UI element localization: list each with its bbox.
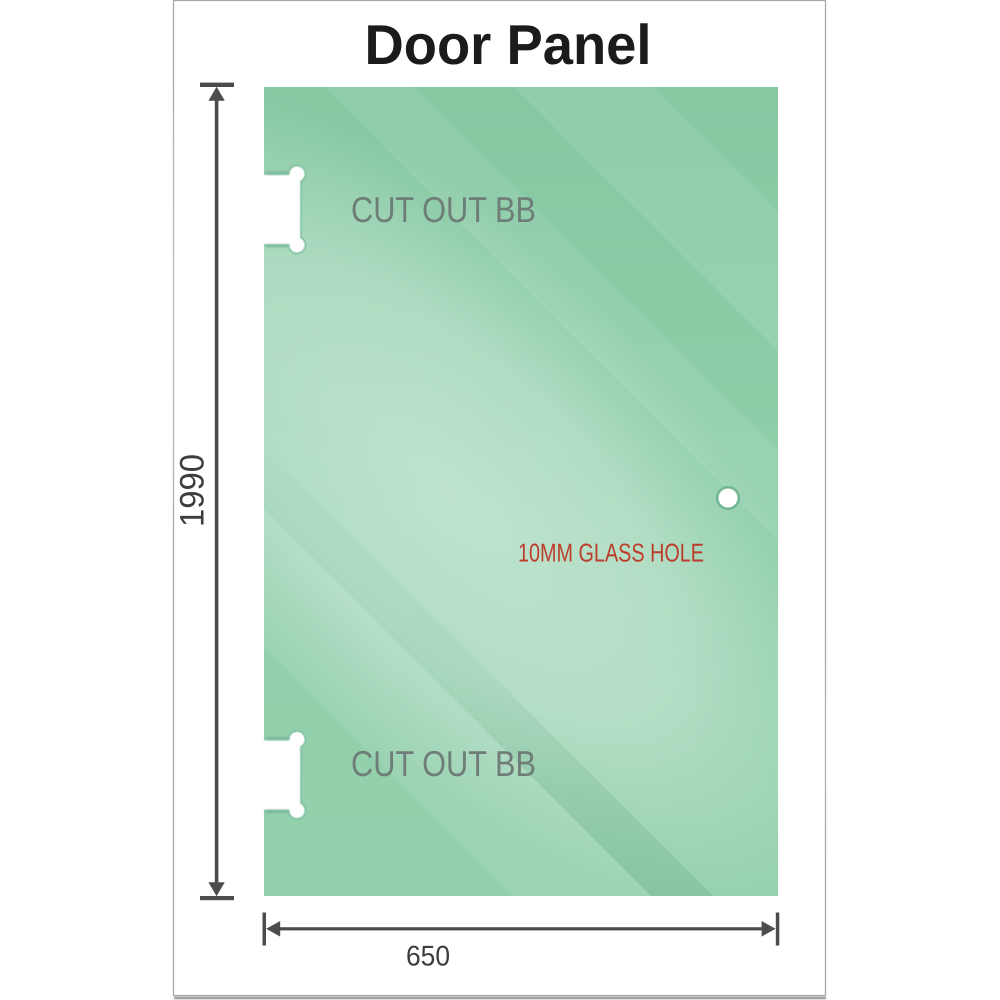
svg-text:CUT OUT BB: CUT OUT BB — [351, 189, 536, 230]
svg-text:Door Panel: Door Panel — [365, 13, 652, 76]
svg-text:1990: 1990 — [174, 454, 212, 527]
svg-text:10MM GLASS HOLE: 10MM GLASS HOLE — [518, 540, 704, 568]
svg-text:CUT OUT BB: CUT OUT BB — [351, 743, 536, 784]
svg-text:650: 650 — [406, 941, 450, 973]
